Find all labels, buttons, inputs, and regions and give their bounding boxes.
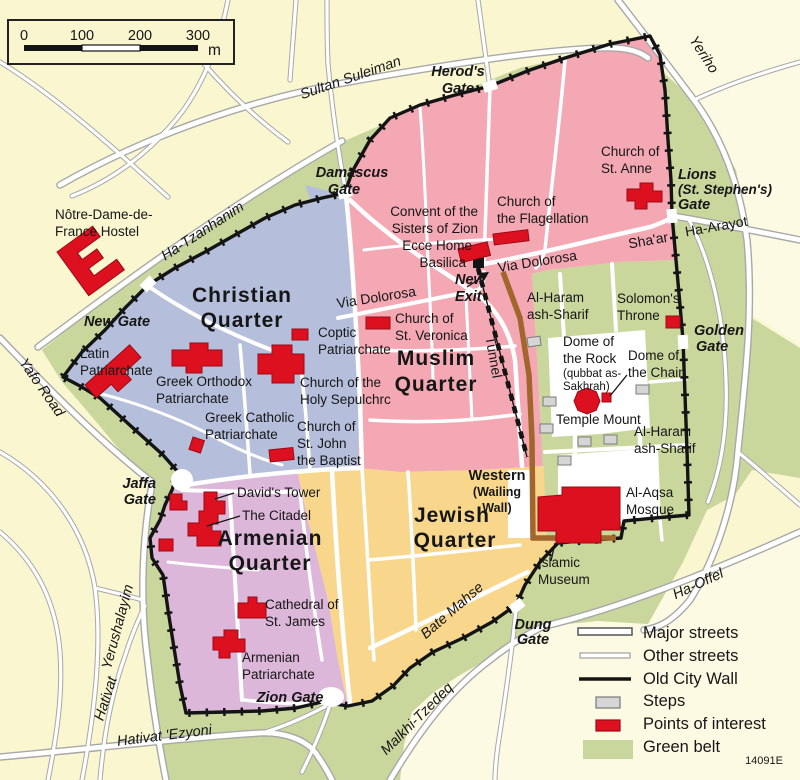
legend-map-code: 14091E: [745, 755, 783, 767]
label-lions-gate-3: Gate: [678, 197, 710, 213]
legend-symbol-major-streets: [578, 628, 632, 635]
label-flagellation-1: Church of: [497, 194, 556, 209]
label-convent-1: Convent of the: [390, 204, 478, 219]
label-greek-orthodox-1: Greek Orthodox: [156, 374, 252, 389]
label-notre-dame-1: Nôtre-Dame-de-: [55, 207, 153, 222]
legend-symbol-steps: [596, 697, 620, 708]
label-new-exit-1: New: [455, 272, 487, 288]
label-dome-rock-4: Sakhrah): [563, 381, 610, 393]
label-christian-quarter-1: Christian: [192, 284, 292, 307]
scale-tick-200: 200: [128, 28, 152, 44]
label-al-aqsa-2: Mosque: [626, 502, 674, 517]
label-jewish-quarter-1: Jewish: [414, 504, 490, 527]
legend-symbol-other-streets: [580, 653, 630, 658]
label-lions-gate-2: (St. Stephen's): [678, 182, 772, 197]
label-st-john-3: the Baptist: [297, 453, 361, 468]
label-new-gate: New Gate: [84, 314, 150, 330]
label-new-exit-2: Exit: [455, 289, 483, 305]
scale-tick-100: 100: [70, 28, 94, 44]
legend-label-old-city-wall: Old City Wall: [643, 670, 738, 688]
label-convent-2: Sisters of Zion: [392, 221, 478, 236]
label-al-haram-north-2: ash-Sharif: [527, 307, 589, 322]
jerusalem-old-city-map: Sultan Suleiman Yeriho Ha-Tzanhanim Yafo…: [0, 0, 800, 780]
poi-st-veronica: [366, 317, 390, 329]
label-muslim-quarter-2: Quarter: [395, 373, 478, 396]
label-dung-gate-2: Gate: [517, 632, 549, 648]
label-armenian-pat-2: Patriarchate: [242, 667, 315, 682]
legend-label-other-streets: Other streets: [643, 647, 738, 665]
label-holy-sepulchre-2: Holy Sepulchrc: [300, 392, 391, 407]
label-coptic-1: Coptic: [318, 325, 357, 340]
label-dome-rock-1: Dome of: [563, 334, 614, 349]
label-damascus-gate-1: Damascus: [316, 165, 389, 181]
label-dome-chain-2: the Chain: [628, 365, 686, 380]
label-coptic-2: Patriarchate: [318, 342, 391, 357]
label-islamic-museum-1: Islamic: [538, 555, 580, 570]
poi-coptic: [292, 329, 308, 340]
label-muslim-quarter-1: Muslim: [397, 347, 475, 370]
label-zion-gate: Zion Gate: [256, 690, 324, 706]
label-western-wall-3: Wall): [482, 501, 511, 515]
scale-segment-2: [82, 45, 140, 51]
label-al-haram-north-1: Al-Haram: [527, 290, 584, 305]
label-flagellation-2: the Flagellation: [497, 211, 589, 226]
jaffa-gate-plaza: [171, 469, 193, 491]
legend-symbol-green-belt: [583, 740, 633, 759]
scale-segment-3: [140, 45, 198, 51]
scale-bar: 0 100 200 300 m: [8, 20, 234, 64]
label-st-veronica-1: Church of: [395, 311, 454, 326]
label-latin-2: Patriarchate: [80, 363, 153, 378]
label-citadel: The Citadel: [242, 508, 311, 523]
label-islamic-museum-2: Museum: [538, 572, 590, 587]
label-christian-quarter-2: Quarter: [201, 309, 284, 332]
label-st-john-2: St. John: [297, 436, 347, 451]
label-greek-orthodox-2: Patriarchate: [156, 391, 229, 406]
map-canvas: Sultan Suleiman Yeriho Ha-Tzanhanim Yafo…: [0, 0, 800, 780]
label-damascus-gate-2: Gate: [328, 182, 360, 198]
label-dung-gate-1: Dung: [514, 617, 551, 633]
legend-label-poi: Points of interest: [643, 715, 766, 733]
label-temple-mount: Temple Mount: [556, 412, 641, 427]
scale-unit: m: [208, 42, 221, 59]
poi-dome-of-chain: [602, 393, 611, 402]
label-jaffa-gate-1: Jaffa: [122, 476, 156, 492]
label-dome-rock-3: (qubbat as-: [563, 368, 621, 380]
label-western-wall-1: Western: [469, 468, 526, 484]
label-western-wall-2: (Wailing: [473, 485, 521, 499]
label-st-john-1: Church of: [297, 419, 356, 434]
label-herods-gate-1: Herod's: [431, 64, 484, 80]
label-latin-1: Latin: [80, 346, 109, 361]
label-armenian-quarter-2: Quarter: [229, 552, 312, 575]
label-notre-dame-2: France Hostel: [55, 224, 139, 239]
scale-segment-1: [24, 45, 82, 51]
label-solomons-1: Solomon's: [617, 291, 680, 306]
label-al-haram-south-1: Al-Haram: [634, 424, 691, 439]
label-holy-sepulchre-1: Church of the: [300, 375, 381, 390]
label-al-aqsa-1: Al-Aqsa: [626, 485, 674, 500]
label-dome-rock-2: the Rock: [563, 351, 617, 366]
label-st-james-1: Cathedral of: [265, 597, 339, 612]
label-st-anne-1: Church of: [601, 144, 660, 159]
label-golden-gate-2: Gate: [696, 339, 728, 355]
label-herods-gate-2: Gate: [442, 81, 474, 97]
legend-label-major-streets: Major streets: [643, 624, 738, 642]
label-davids-tower: David's Tower: [237, 485, 321, 500]
legend-label-green-belt: Green belt: [643, 738, 720, 756]
label-convent-3: Ecce Home: [402, 238, 472, 253]
label-st-anne-2: St. Anne: [601, 161, 652, 176]
label-jewish-quarter-2: Quarter: [414, 529, 497, 552]
label-jaffa-gate-2: Gate: [124, 492, 156, 508]
scale-tick-0: 0: [20, 28, 28, 44]
label-lions-gate-1: Lions: [678, 167, 717, 183]
label-golden-gate-1: Golden: [694, 323, 744, 339]
label-armenian-pat-1: Armenian: [242, 650, 300, 665]
label-al-haram-south-2: ash-Sharif: [634, 441, 696, 456]
legend-label-steps: Steps: [643, 692, 685, 710]
legend-symbol-poi: [596, 720, 620, 731]
label-convent-4: Basilica: [419, 255, 466, 270]
label-greek-catholic-1: Greek Catholic: [205, 410, 295, 425]
poi-solomons-throne: [666, 316, 680, 328]
label-armenian-quarter-1: Armenian: [218, 527, 323, 550]
label-st-james-2: St. James: [265, 614, 325, 629]
poi-st-john: [269, 447, 294, 461]
label-dome-chain-1: Dome of: [628, 348, 679, 363]
label-st-veronica-2: St. Veronica: [395, 328, 468, 343]
label-greek-catholic-2: Patriarchate: [205, 427, 278, 442]
poi-citadel-sw: [159, 539, 173, 551]
label-solomons-2: Throne: [617, 308, 660, 323]
scale-tick-300: 300: [186, 28, 210, 44]
